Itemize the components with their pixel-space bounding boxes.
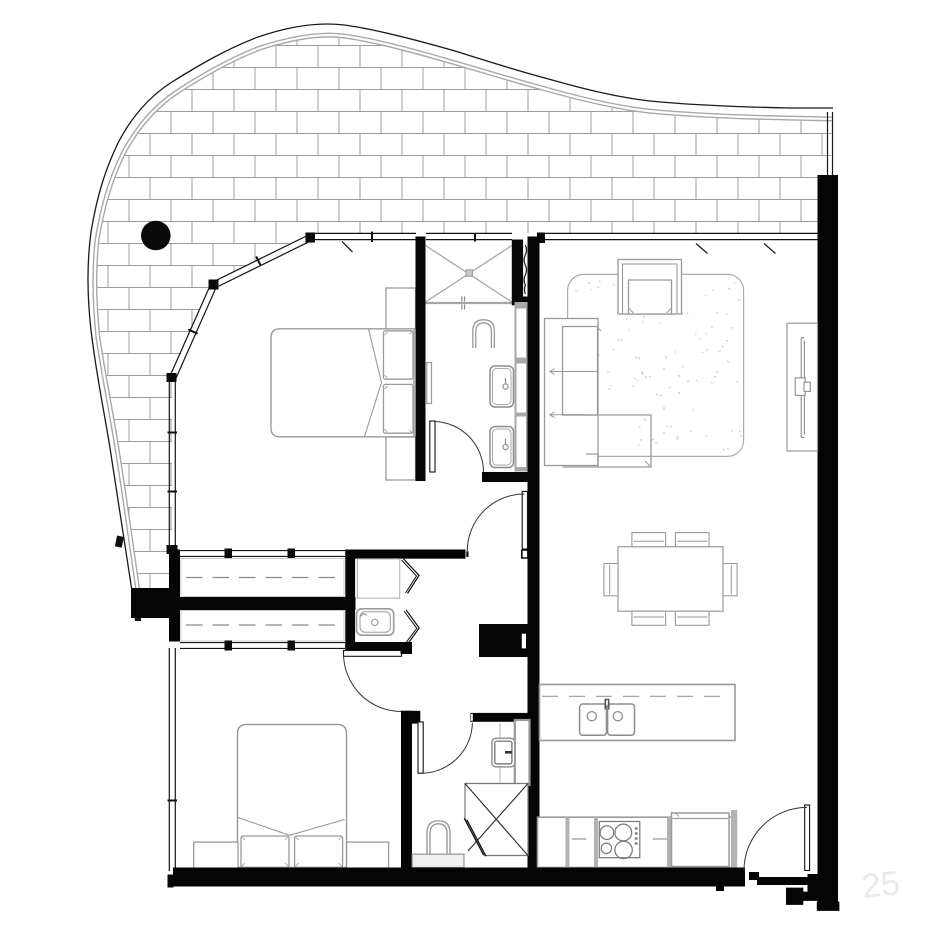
- svg-text:25: 25: [860, 864, 902, 906]
